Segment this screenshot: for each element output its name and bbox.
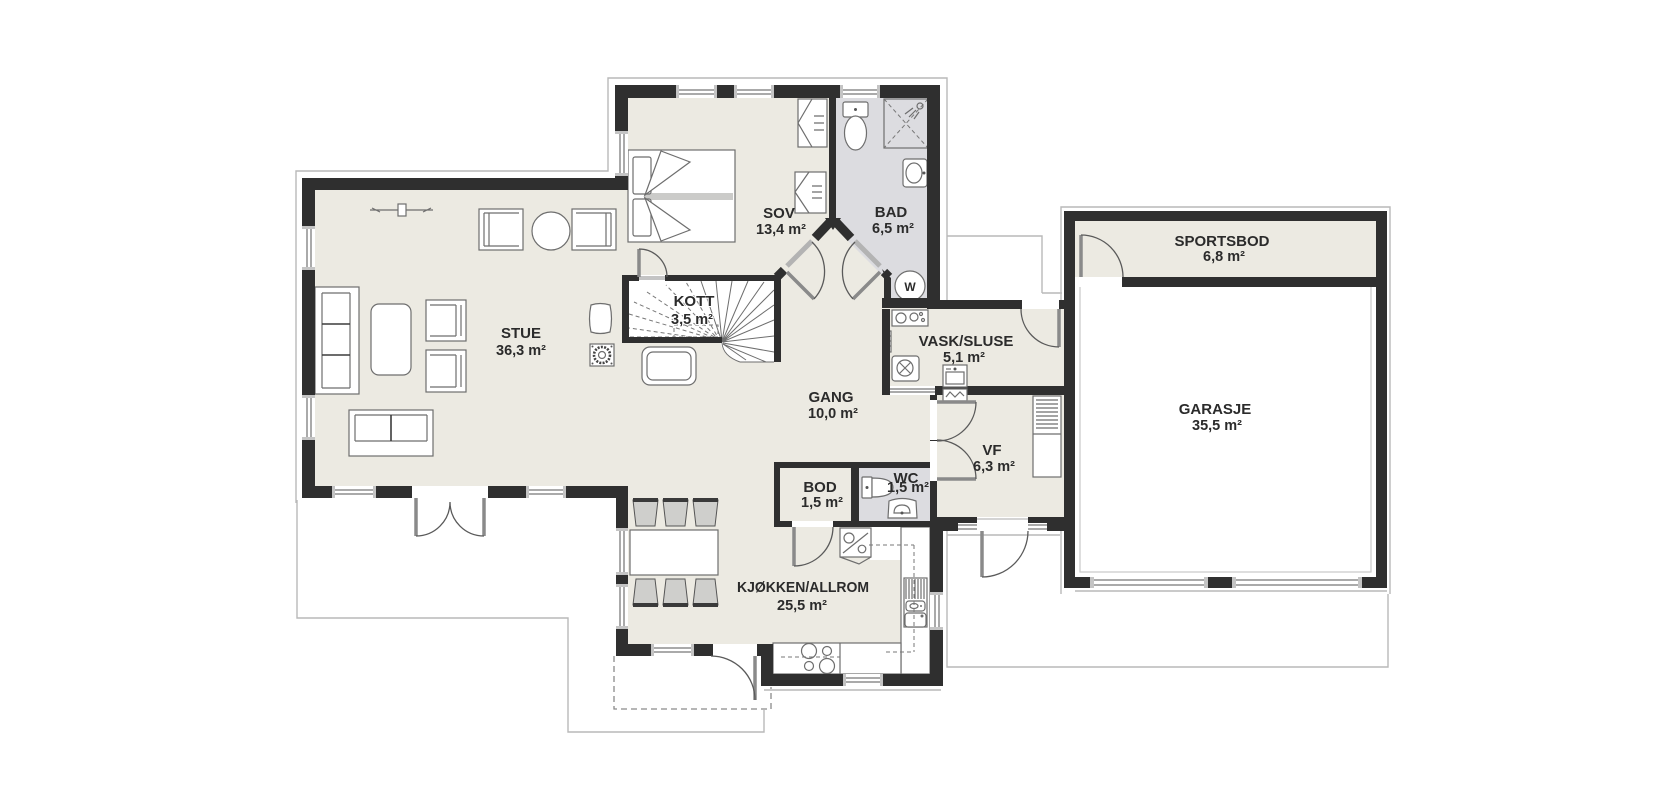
svg-text:GANG: GANG: [809, 389, 854, 406]
svg-text:1,5 m²: 1,5 m²: [801, 495, 843, 511]
svg-text:10,0 m²: 10,0 m²: [808, 406, 858, 422]
svg-text:3,5 m²: 3,5 m²: [671, 312, 713, 328]
svg-text:GARASJE: GARASJE: [1179, 401, 1252, 418]
svg-text:6,8 m²: 6,8 m²: [1203, 249, 1245, 265]
svg-text:6,3 m²: 6,3 m²: [973, 459, 1015, 475]
svg-text:W: W: [904, 280, 916, 294]
svg-text:1,5 m²: 1,5 m²: [887, 480, 929, 496]
svg-text:SOV: SOV: [763, 205, 795, 222]
svg-text:35,5 m²: 35,5 m²: [1192, 418, 1242, 434]
svg-text:36,3 m²: 36,3 m²: [496, 343, 546, 359]
svg-text:KOTT: KOTT: [674, 293, 715, 310]
svg-text:BOD: BOD: [803, 479, 837, 496]
svg-text:BAD: BAD: [875, 204, 908, 221]
svg-text:SPORTSBOD: SPORTSBOD: [1174, 233, 1269, 250]
svg-text:25,5 m²: 25,5 m²: [777, 598, 827, 614]
svg-text:6,5 m²: 6,5 m²: [872, 221, 914, 237]
svg-text:KJØKKEN/ALLROM: KJØKKEN/ALLROM: [737, 579, 869, 596]
svg-text:STUE: STUE: [501, 325, 541, 342]
svg-text:5,1 m²: 5,1 m²: [943, 350, 985, 366]
svg-text:VF: VF: [982, 442, 1001, 459]
svg-text:13,4 m²: 13,4 m²: [756, 222, 806, 238]
svg-text:VASK/SLUSE: VASK/SLUSE: [919, 333, 1014, 350]
